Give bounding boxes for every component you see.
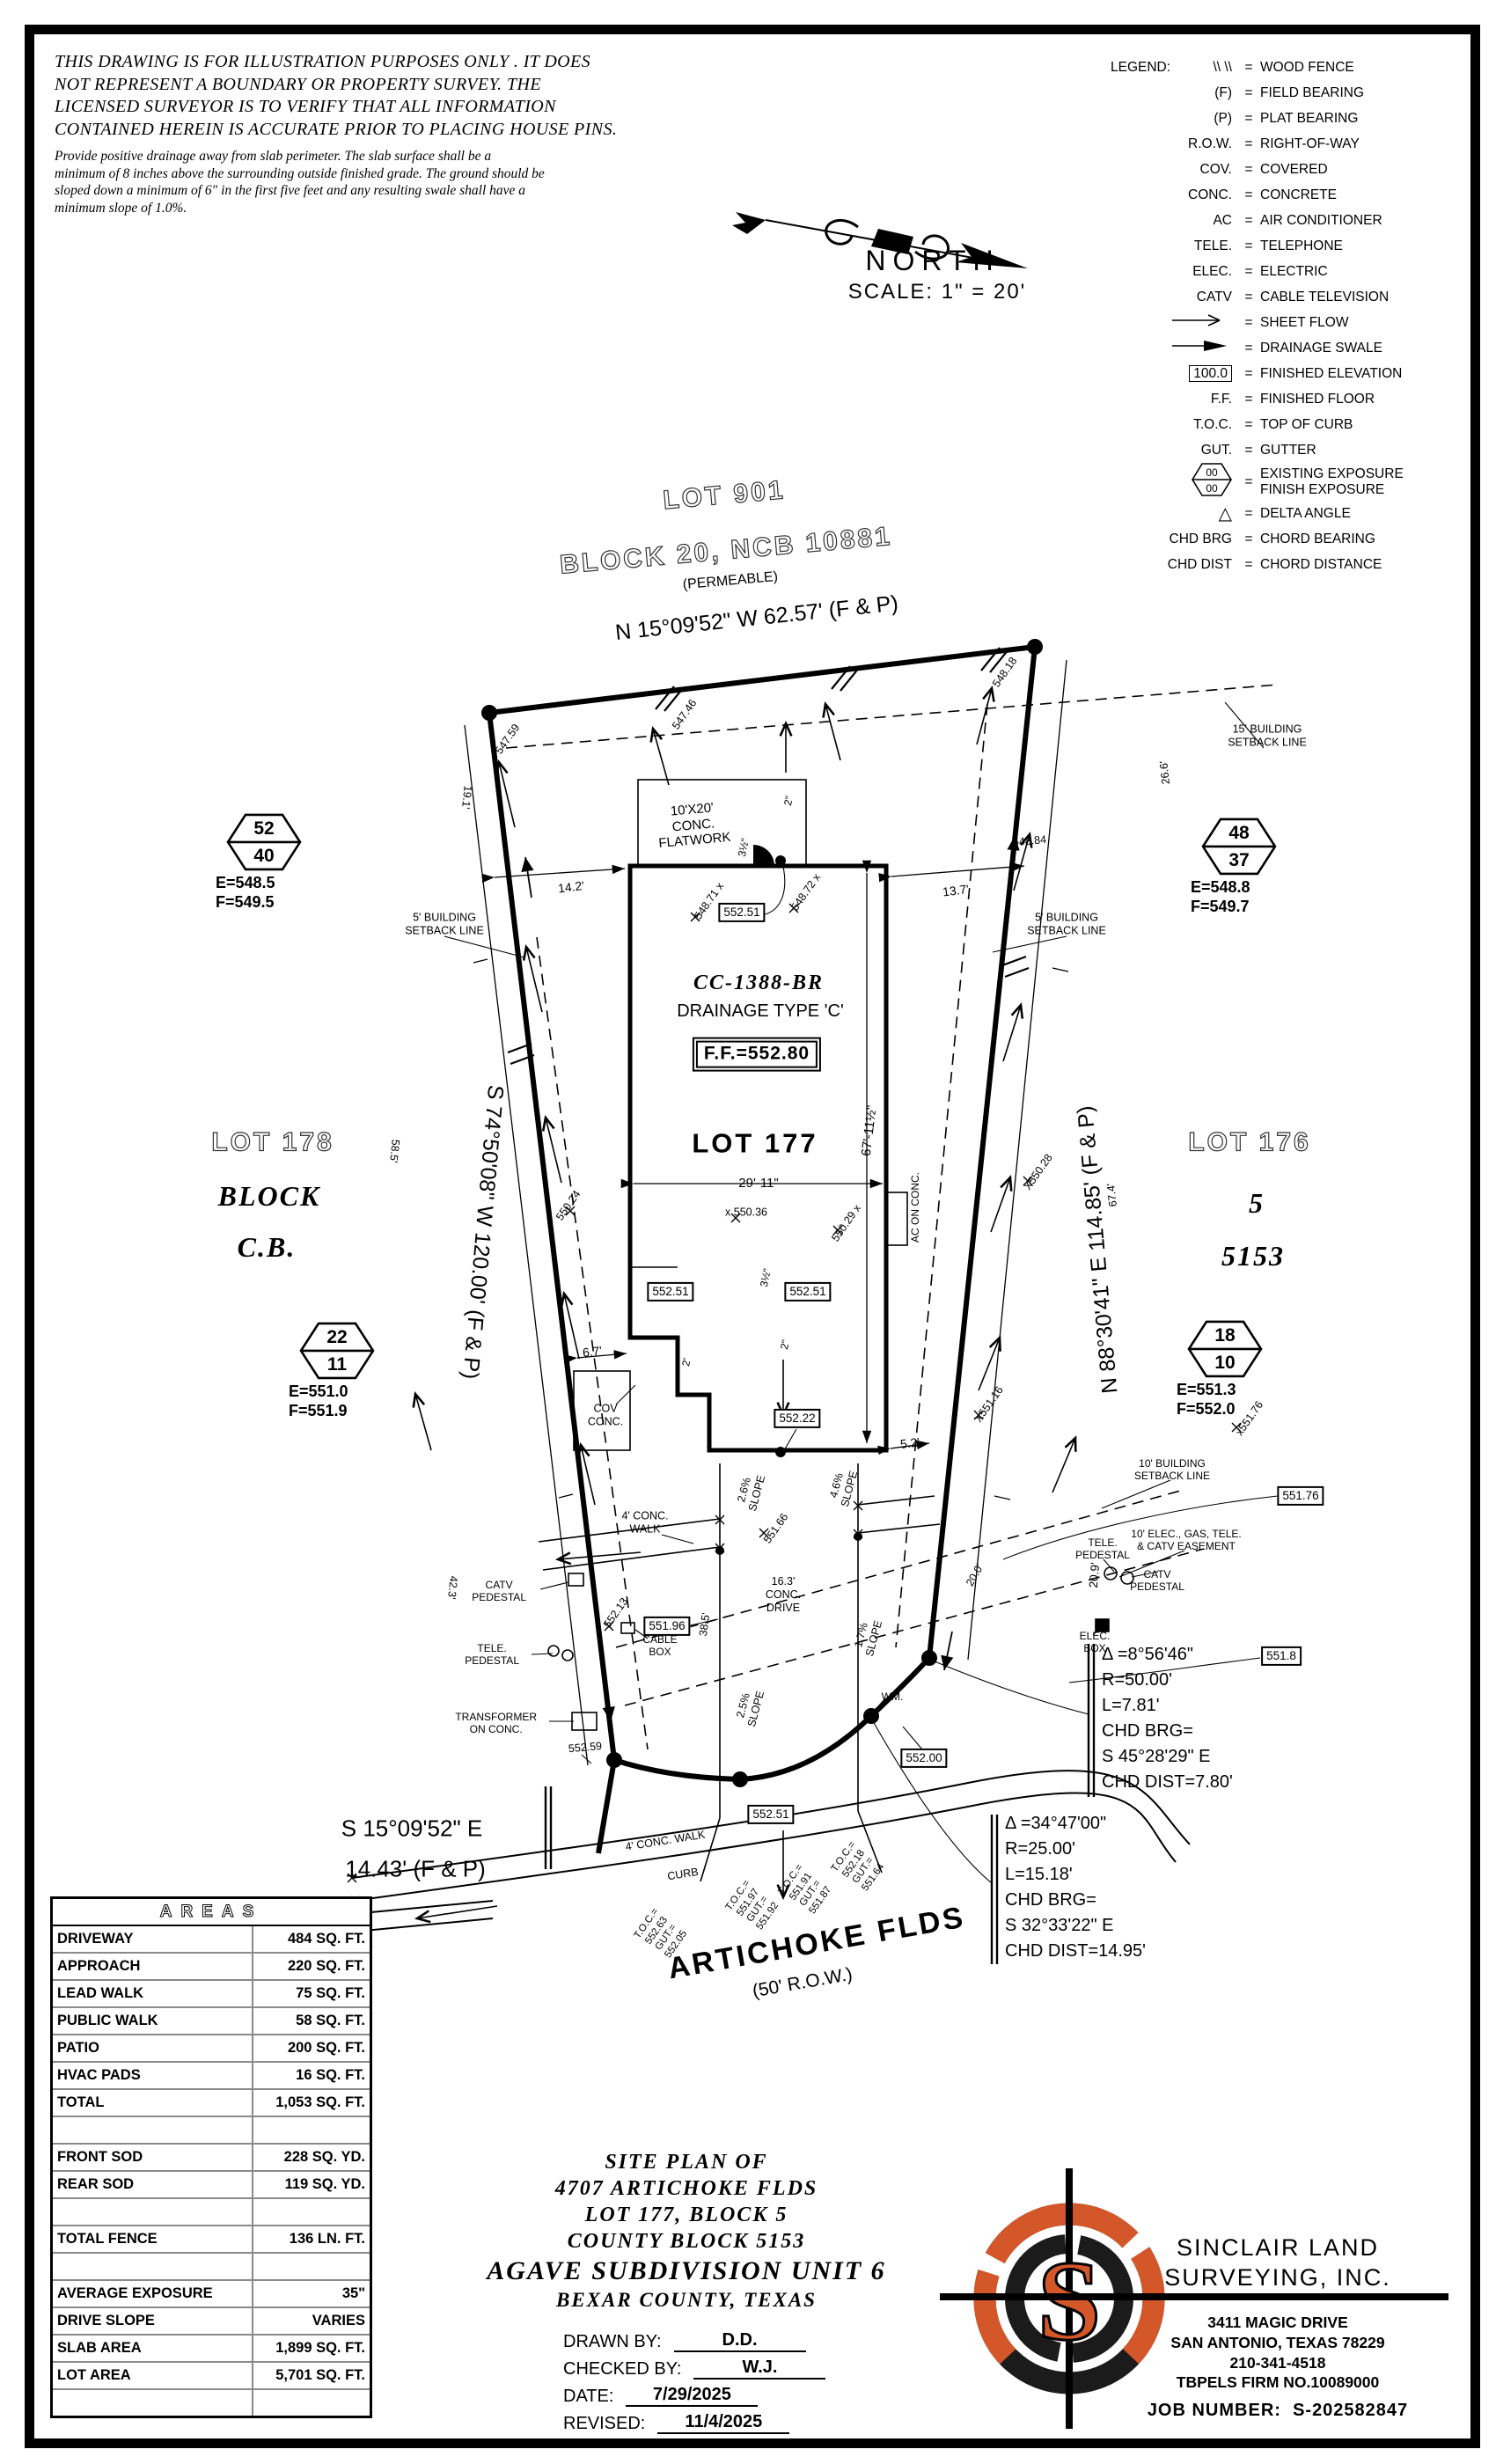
areas-row-value (253, 2116, 370, 2144)
areas-row-label: DRIVEWAY (52, 1925, 253, 1953)
areas-row-value: 16 SQ. FT. (253, 2062, 370, 2089)
areas-row-label: LOT AREA (52, 2362, 253, 2389)
areas-row: AVERAGE EXPOSURE35" (52, 2280, 371, 2307)
plan-label: 3½" (736, 837, 752, 857)
plan-label: LOT 176 (1188, 1126, 1310, 1157)
elevation-values: E=548.8 F=549.7 (1191, 878, 1277, 916)
plan-label: 551.66 (761, 1511, 791, 1546)
areas-row-value (253, 2253, 370, 2280)
exposure-hexagon: 2211E=551.0 F=551.9 (299, 1322, 375, 1420)
plan-label: 58.5' (386, 1139, 401, 1163)
title-line: SITE PLAN OF (414, 2149, 959, 2175)
plan-label: DRAINAGE TYPE 'C' (677, 1001, 844, 1023)
plan-label: N 88°30'41" E 114.85' (F & P) (1073, 1104, 1124, 1394)
plan-label: 548.18 (990, 655, 1020, 690)
plan-label: T.O.C.= 552.18 GUT.= 551.64 (830, 1839, 889, 1895)
plan-label: CATV PEDESTAL (472, 1579, 526, 1603)
plan-label: 5 (1249, 1187, 1265, 1221)
plan-label: 552.51 (718, 903, 765, 922)
curve-data-line: Δ =8°56'46" (1102, 1642, 1233, 1668)
plan-label: 1.7% SLOPE (850, 1616, 884, 1658)
areas-row-label: PUBLIC WALK (52, 2007, 253, 2035)
areas-row-label: LEAD WALK (52, 1980, 253, 2007)
curve-data-line: S 32°33'22" E (1005, 1913, 1146, 1939)
plan-label: CC-1388-BR (693, 971, 824, 995)
plan-label: 552.51 (784, 1282, 831, 1302)
curve-data-line: L=15.18' (1005, 1862, 1146, 1888)
plan-label: 38.5' (697, 1612, 713, 1638)
finish-exposure-value: 10 (1187, 1353, 1263, 1374)
plan-label: 10' BUILDING SETBACK LINE (1134, 1457, 1210, 1482)
curve-data-line: L=7.81' (1102, 1693, 1233, 1719)
plan-label: 2.6% SLOPE (733, 1470, 767, 1513)
plan-label: 10'X20' CONC. FLATWORK (656, 799, 732, 852)
areas-row-value: 35" (253, 2280, 370, 2307)
finish-exposure-value: 37 (1201, 850, 1277, 871)
plan-label: C.B. (238, 1231, 297, 1265)
plan-label: 548.84 (1012, 833, 1046, 849)
title-field-label: REVISED: (563, 2414, 645, 2434)
title-line: 4707 ARTICHOKE FLDS (414, 2175, 959, 2202)
plan-label: 2" (781, 795, 796, 807)
plan-label: 20.0' (964, 1562, 986, 1589)
areas-row-label: REAR SOD (52, 2171, 253, 2198)
plan-label: 552.59 (568, 1740, 602, 1756)
plan-label: 2" (778, 1338, 792, 1351)
plan-label: 4.6% SLOPE (825, 1466, 860, 1508)
title-line: LOT 177, BLOCK 5 (414, 2202, 959, 2228)
title-block: SITE PLAN OF4707 ARTICHOKE FLDSLOT 177, … (414, 2149, 959, 2313)
plan-label: 26.6' (1157, 760, 1172, 785)
plan-label: 551.8 (1261, 1646, 1302, 1666)
areas-row (52, 2116, 371, 2144)
areas-row: PATIO200 SQ. FT. (52, 2035, 371, 2062)
areas-row-value: 200 SQ. FT. (253, 2035, 370, 2062)
elevation-values: E=548.5 F=549.5 (216, 874, 302, 912)
areas-row-label: PATIO (52, 2035, 253, 2062)
plan-label: 14.43' (F & P) (345, 1856, 486, 1883)
areas-row: PUBLIC WALK58 SQ. FT. (52, 2007, 371, 2035)
areas-row: TOTAL FENCE136 LN. FT. (52, 2226, 371, 2253)
title-field-value: 7/29/2025 (626, 2385, 758, 2407)
exposure-hexagon: 1810E=551.3 F=552.0 (1187, 1320, 1263, 1419)
plan-label: 5' BUILDING SETBACK LINE (405, 911, 484, 937)
plan-label: 10' ELEC., GAS, TELE. & CATV EASEMENT (1131, 1528, 1241, 1552)
areas-row-value: 75 SQ. FT. (253, 1980, 370, 2007)
plan-label: 16.3' CONC. DRIVE (766, 1575, 801, 1614)
title-field-value: 11/4/2025 (657, 2412, 789, 2434)
plan-label: 552.51 (747, 1805, 794, 1824)
plan-label: S 15°09'52" E (341, 1815, 482, 1843)
exposure-hexagon: 4837E=548.8 F=549.7 (1201, 818, 1277, 916)
plan-label: (50' R.O.W.) (751, 1964, 854, 2003)
plan-label: 547.59 (493, 722, 523, 757)
plan-label: 551.76 (1277, 1486, 1324, 1506)
company-firm: TBPELS FIRM NO.10089000 (1105, 2372, 1450, 2393)
curve-data-line: CHD DIST=7.80' (1102, 1770, 1233, 1795)
legend-title: LEGEND: (1111, 60, 1170, 76)
plan-label: (PERMEABLE) (682, 569, 779, 594)
title-field: DRAWN BY:D.D. (563, 2330, 825, 2352)
plan-label: 6.7' (582, 1343, 603, 1360)
plan-label: BLOCK 20, NCB 10881 (559, 521, 893, 581)
finish-exposure-value: 11 (299, 1354, 375, 1375)
areas-row-label (52, 2253, 253, 2280)
elevation-values: E=551.0 F=551.9 (289, 1382, 375, 1420)
title-field-label: DRAWN BY: (563, 2332, 662, 2352)
plan-label: 5' BUILDING SETBACK LINE (1027, 911, 1106, 937)
plan-label: x 550.36 (725, 1206, 767, 1220)
curve-data-line: R=50.00' (1102, 1668, 1233, 1693)
company-name: SURVEYING, INC. (1105, 2263, 1450, 2293)
curve-data-line: Δ =34°47'00" (1005, 1811, 1146, 1837)
areas-row-value: 136 LN. FT. (253, 2226, 370, 2253)
areas-row-value: 228 SQ. YD. (253, 2144, 370, 2171)
company-divider (940, 2293, 1448, 2300)
areas-row-label: SLAB AREA (52, 2335, 253, 2362)
plan-label: LOT 901 (662, 474, 787, 516)
plan-label: 4' CONC. WALK (621, 1509, 668, 1536)
areas-row-label (52, 2198, 253, 2226)
areas-row-label: AVERAGE EXPOSURE (52, 2280, 253, 2307)
plan-label: CURB (666, 1866, 699, 1883)
areas-row: LEAD WALK75 SQ. FT. (52, 1980, 371, 2007)
areas-row: TOTAL1,053 SQ. FT. (52, 2089, 371, 2116)
plan-label: LOT 178 (211, 1126, 334, 1157)
areas-row (52, 2253, 371, 2280)
plan-label: 42.3' (444, 1575, 459, 1600)
title-field: DATE:7/29/2025 (563, 2385, 825, 2407)
plan-label: 29'-11" (738, 1176, 778, 1192)
plan-label: 552.22 (774, 1409, 820, 1428)
logo-letter: S (1038, 2238, 1101, 2365)
curve-data-line: S 45°28'29" E (1102, 1744, 1233, 1770)
plan-label: T.O.C.= 551.97 GUT.= 551.92 (724, 1878, 783, 1933)
company-block: S SINCLAIR LAND SURVEYING, INC. 3411 MAG… (933, 2165, 1452, 2429)
areas-row: DRIVE SLOPEVARIES (52, 2307, 371, 2335)
plan-label: 552.13 (601, 1595, 631, 1631)
plan-label: 15' BUILDING SETBACK LINE (1228, 722, 1307, 749)
company-address: SAN ANTONIO, TEXAS 78229 (1105, 2333, 1450, 2353)
plan-label: 13.7' (942, 882, 970, 899)
plan-label: BLOCK (218, 1180, 321, 1214)
plan-label: AC ON CONC. (909, 1172, 921, 1243)
curve-data-line: CHD BRG= (1005, 1888, 1146, 1913)
plan-label: WM. (882, 1690, 904, 1703)
areas-row: DRIVEWAY484 SQ. FT. (52, 1925, 371, 1953)
areas-row-value: 119 SQ. YD. (253, 2171, 370, 2198)
plan-label: F.F.=552.80 (696, 1041, 818, 1068)
company-address: 3411 MAGIC DRIVE (1105, 2313, 1450, 2333)
company-phone: 210-341-4518 (1105, 2353, 1450, 2373)
areas-row-label (52, 2116, 253, 2144)
plan-label: LOT 177 (692, 1128, 818, 1161)
title-block-fields: DRAWN BY:D.D.CHECKED BY:W.J.DATE:7/29/20… (563, 2330, 825, 2439)
site-plan-sheet: { "disclaimer": { "lines": [ "THIS DRAWI… (0, 0, 1496, 2464)
areas-row: APPROACH220 SQ. FT. (52, 1953, 371, 1980)
plan-label: X550.28 (1022, 1152, 1056, 1193)
plan-label: 548.72 x (788, 871, 824, 913)
areas-row (52, 2198, 371, 2226)
plan-label: T.O.C.= 551.91 GUT.= 551.87 (777, 1862, 836, 1918)
plan-label: TRANSFORMER ON CONC. (455, 1711, 537, 1735)
plan-label: 2.5% SLOPE (732, 1686, 766, 1728)
areas-row: REAR SOD119 SQ. YD. (52, 2171, 371, 2198)
areas-row-label: HVAC PADS (52, 2062, 253, 2089)
areas-row-value: VARIES (253, 2307, 370, 2335)
plan-label: 5153 (1221, 1240, 1285, 1273)
title-line: BEXAR COUNTY, TEXAS (414, 2288, 959, 2314)
plan-label: 547.46 (670, 697, 700, 732)
areas-row-value: 5,701 SQ. FT. (253, 2362, 370, 2389)
job-number: JOB NUMBER: S-202582847 (1105, 2401, 1450, 2421)
curve-data-callout: Δ =34°47'00"R=25.00'L=15.18'CHD BRG=S 32… (1005, 1811, 1146, 1964)
plan-label: COV CONC. (588, 1402, 623, 1428)
areas-row: HVAC PADS16 SQ. FT. (52, 2062, 371, 2089)
plan-label: 67.4' (1104, 1183, 1119, 1207)
areas-row-label: DRIVE SLOPE (52, 2307, 253, 2335)
title-line: AGAVE SUBDIVISION UNIT 6 (414, 2255, 959, 2288)
title-field: CHECKED BY:W.J. (563, 2358, 825, 2380)
existing-exposure-value: 52 (226, 818, 302, 840)
areas-table: AREAS DRIVEWAY484 SQ. FT.APPROACH220 SQ.… (50, 1896, 372, 2418)
areas-row-value (253, 2198, 370, 2226)
plan-label: CABLE BOX (642, 1633, 677, 1658)
areas-row: SLAB AREA1,899 SQ. FT. (52, 2335, 371, 2362)
plan-label: CATV PEDESTAL (1130, 1568, 1184, 1593)
finish-exposure-value: 40 (226, 846, 302, 867)
areas-row-label: TOTAL FENCE (52, 2226, 253, 2253)
areas-row-value: 1,053 SQ. FT. (253, 2089, 370, 2116)
existing-exposure-value: 18 (1187, 1325, 1263, 1346)
curve-data-line: CHD BRG= (1102, 1719, 1233, 1744)
plan-label: 19.1' (458, 785, 473, 810)
areas-row-label: TOTAL (52, 2089, 253, 2116)
areas-row: FRONT SOD228 SQ. YD. (52, 2144, 371, 2171)
curve-data-line: R=25.00' (1005, 1837, 1146, 1862)
curve-data-line: CHD DIST=14.95' (1005, 1939, 1146, 1964)
plan-label: 550.29 x (829, 1202, 864, 1244)
areas-row-value: 1,899 SQ. FT. (253, 2335, 370, 2362)
plan-label: N 15°09'52" W 62.57' (F & P) (614, 590, 899, 646)
areas-row: LOT AREA5,701 SQ. FT. (52, 2362, 371, 2389)
plan-label: TELE. PEDESTAL (1075, 1536, 1130, 1561)
areas-row (52, 2389, 371, 2417)
areas-row-value: 220 SQ. FT. (253, 1953, 370, 1980)
areas-row-label: APPROACH (52, 1953, 253, 1980)
existing-exposure-value: 48 (1201, 823, 1277, 844)
title-field-label: CHECKED BY: (563, 2359, 681, 2380)
plan-label: TELE. PEDESTAL (465, 1642, 519, 1667)
plan-label: 2' (679, 1357, 693, 1368)
plan-label: 20.9' (1087, 1562, 1103, 1588)
plan-label: 3½" (758, 1267, 774, 1287)
plan-label: 14.2' (557, 878, 585, 896)
plan-label: 67'-11½" (859, 1104, 881, 1157)
existing-exposure-value: 22 (299, 1327, 375, 1348)
title-field: REVISED:11/4/2025 (563, 2412, 825, 2434)
plan-label: 4' CONC. WALK (625, 1829, 707, 1854)
areas-row-value (253, 2389, 370, 2417)
plan-label: X551.16 (972, 1384, 1007, 1426)
areas-row-label: FRONT SOD (52, 2144, 253, 2171)
title-line: COUNTY BLOCK 5153 (414, 2228, 959, 2255)
elevation-values: E=551.3 F=552.0 (1177, 1381, 1263, 1419)
plan-label: 552.00 (900, 1749, 947, 1768)
title-field-value: W.J. (693, 2358, 825, 2380)
plan-label: S 74°50'08" W 120.00' (F & P) (457, 1084, 509, 1381)
plan-label: 550.24 (554, 1188, 583, 1223)
curve-data-callout: Δ =8°56'46"R=50.00'L=7.81'CHD BRG=S 45°2… (1102, 1642, 1233, 1795)
company-name: SINCLAIR LAND (1105, 2233, 1450, 2263)
areas-title: AREAS (52, 1898, 371, 1926)
areas-row-value: 484 SQ. FT. (253, 1925, 370, 1953)
title-field-value: D.D. (674, 2330, 806, 2352)
areas-row-label (52, 2389, 253, 2417)
plan-label: 5.2' (899, 1434, 920, 1451)
areas-row-value: 58 SQ. FT. (253, 2007, 370, 2035)
exposure-hexagon: 5240E=548.5 F=549.5 (226, 813, 302, 912)
title-field-label: DATE: (563, 2387, 613, 2407)
plan-label: 552.51 (647, 1282, 693, 1302)
